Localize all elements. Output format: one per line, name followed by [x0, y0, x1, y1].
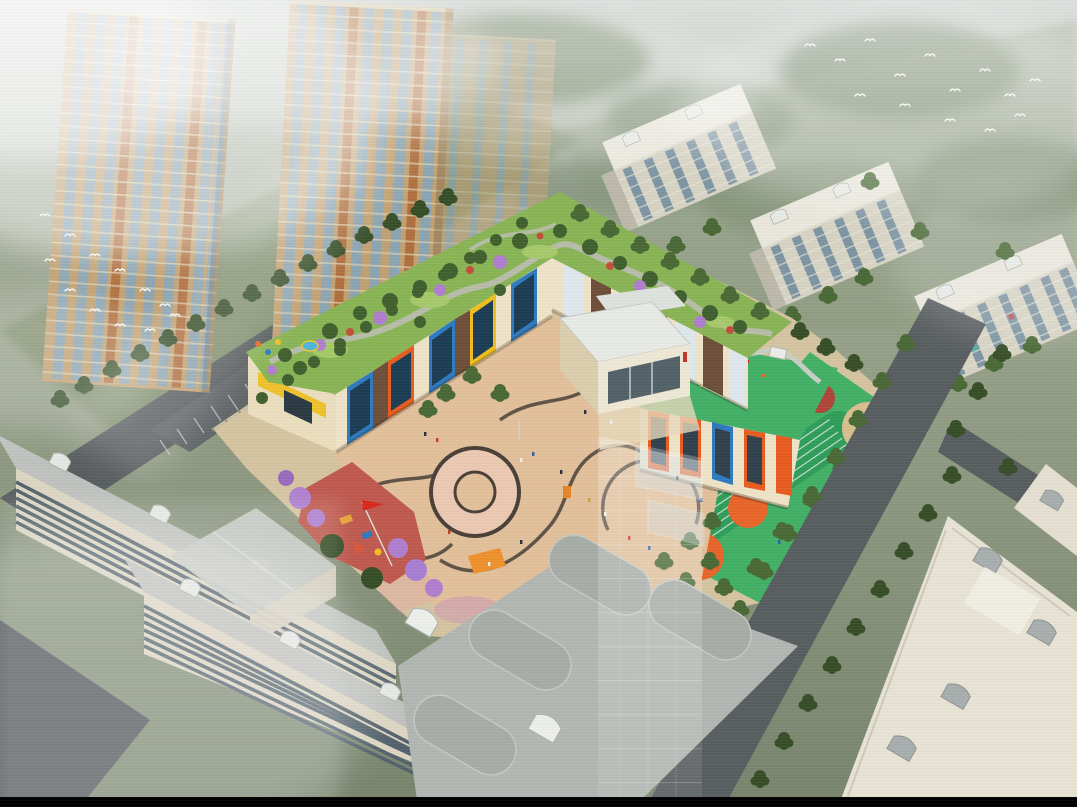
paving-circle-inner — [455, 472, 495, 512]
letterbox-bar — [0, 797, 1077, 807]
entrance-red-sign — [683, 352, 687, 362]
foreground-ghost-haze — [0, 500, 380, 807]
play-structure — [375, 549, 382, 556]
roof-pond — [302, 341, 318, 351]
orange-kiosk — [563, 486, 571, 498]
architectural-rendering — [0, 0, 1077, 807]
